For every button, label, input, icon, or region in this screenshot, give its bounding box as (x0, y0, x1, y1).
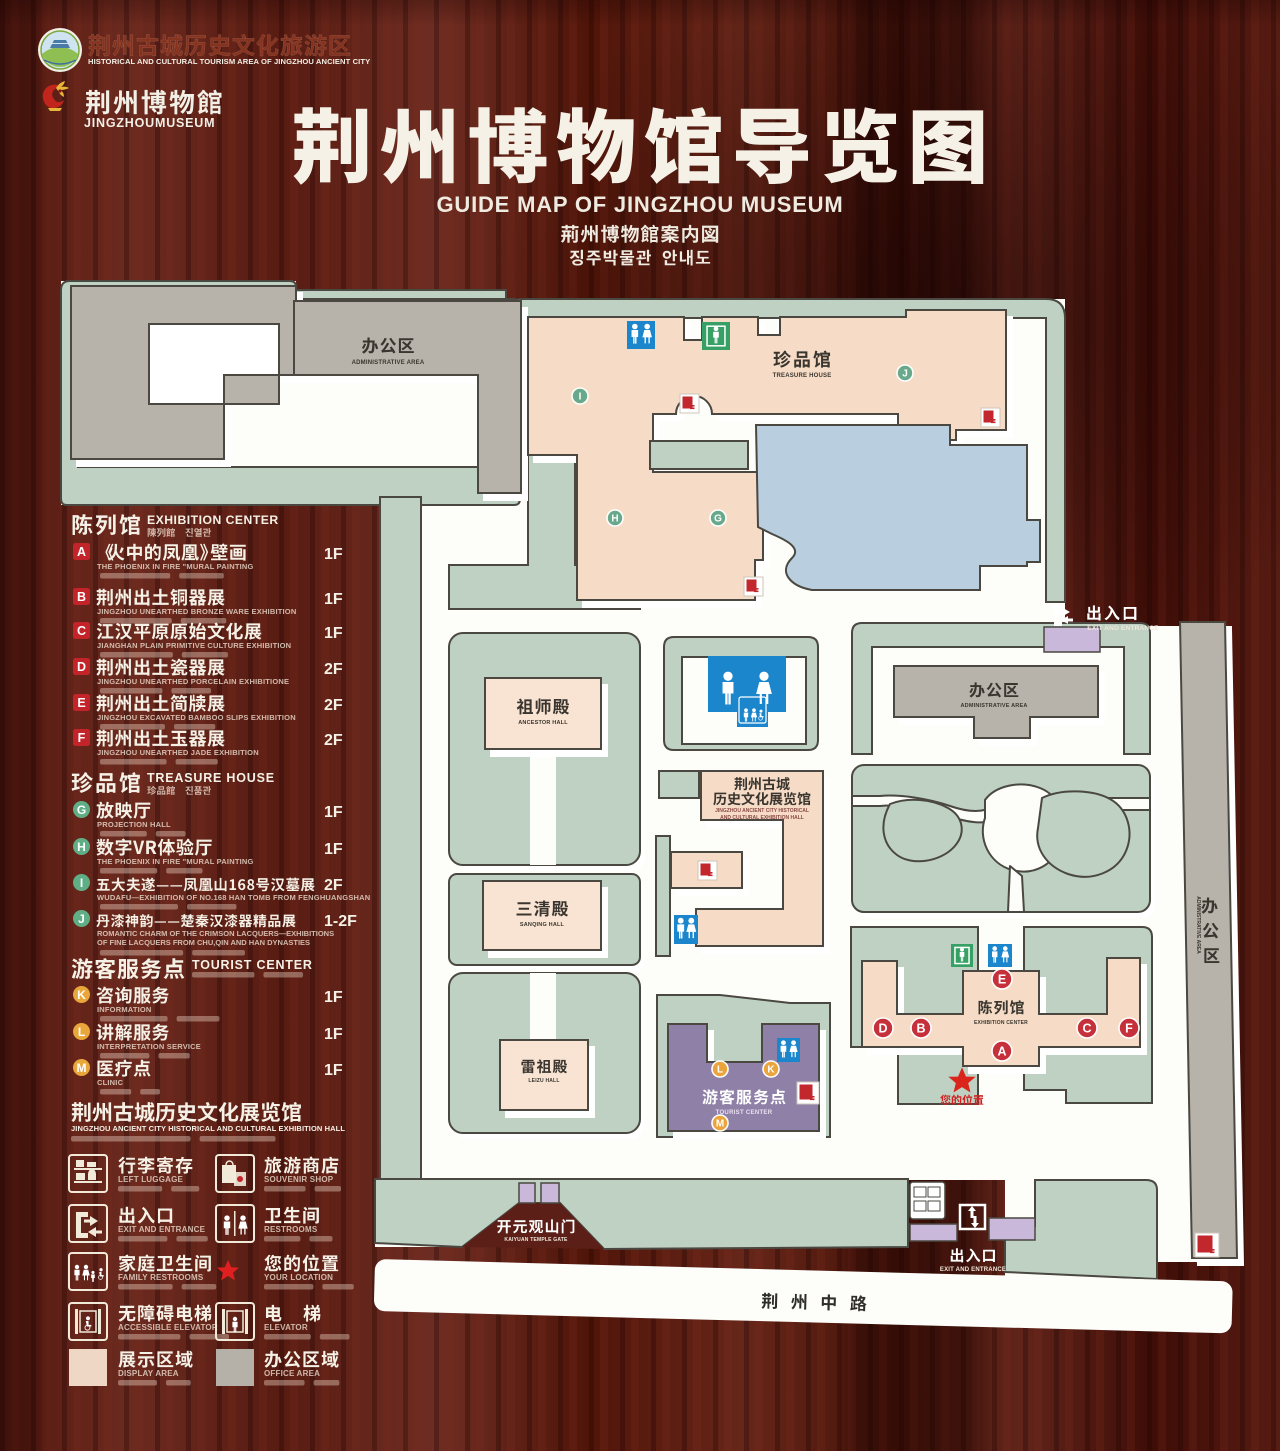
svg-text:INFORMATION: INFORMATION (97, 1005, 152, 1014)
svg-text:2F: 2F (324, 697, 343, 714)
svg-text:J: J (902, 369, 908, 380)
svg-text:JINGZHOU UNEARTHED BRONZE WARE: JINGZHOU UNEARTHED BRONZE WARE EXHIBITIO… (97, 607, 296, 616)
svg-text:K: K (77, 988, 86, 1002)
svg-text:EXHIBITION CENTER: EXHIBITION CENTER (147, 513, 279, 527)
svg-text:D: D (77, 660, 86, 674)
svg-text:1F: 1F (324, 1026, 343, 1043)
svg-text:OF FINE LACQUERS FROM CHU,QIN: OF FINE LACQUERS FROM CHU,QIN AND HAN DY… (97, 938, 310, 947)
svg-text:OFFICE AREA: OFFICE AREA (264, 1369, 320, 1378)
svg-text:HISTORICAL AND CULTURAL TOURIS: HISTORICAL AND CULTURAL TOURISM AREA OF … (88, 57, 370, 66)
svg-text:1F: 1F (324, 1062, 343, 1079)
svg-text:EXIT AND ENTRANCE: EXIT AND ENTRANCE (1087, 625, 1159, 632)
svg-text:M: M (77, 1061, 87, 1075)
svg-text:THE PHOENIX IN FIRE "MURAL PAI: THE PHOENIX IN FIRE "MURAL PAINTING (97, 562, 254, 571)
svg-text:C: C (1082, 1022, 1091, 1036)
svg-text:EXIT AND ENTRANCE: EXIT AND ENTRANCE (940, 1267, 1006, 1273)
svg-text:C: C (77, 624, 86, 638)
svg-text:LEIZU HALL: LEIZU HALL (528, 1078, 559, 1084)
svg-text:GUIDE MAP OF JINGZHOU MUSEUM: GUIDE MAP OF JINGZHOU MUSEUM (436, 192, 843, 217)
svg-text:J: J (78, 912, 85, 926)
svg-text:1F: 1F (324, 546, 343, 563)
svg-text:SOUVENIR SHOP: SOUVENIR SHOP (264, 1175, 334, 1184)
svg-text:E: E (77, 696, 85, 710)
svg-text:RESTROOMS: RESTROOMS (264, 1225, 318, 1234)
svg-text:LEFT LUGGAGE: LEFT LUGGAGE (118, 1175, 184, 1184)
svg-text:A: A (77, 545, 86, 559)
svg-text:I: I (80, 876, 83, 890)
svg-text:B: B (916, 1022, 925, 1036)
svg-text:THE PHOENIX IN FIRE "MURAL PAI: THE PHOENIX IN FIRE "MURAL PAINTING (97, 857, 254, 866)
svg-text:TREASURE HOUSE: TREASURE HOUSE (773, 373, 832, 379)
svg-text:JINGZHOUMUSEUM: JINGZHOUMUSEUM (84, 116, 215, 130)
svg-text:EXIT AND ENTRANCE: EXIT AND ENTRANCE (118, 1225, 206, 1234)
svg-text:L: L (717, 1065, 723, 1076)
svg-text:1F: 1F (324, 841, 343, 858)
svg-text:KAIYUAN TEMPLE GATE: KAIYUAN TEMPLE GATE (504, 1237, 568, 1243)
svg-text:L: L (78, 1025, 85, 1039)
svg-text:2F: 2F (324, 877, 343, 894)
svg-text:1F: 1F (324, 591, 343, 608)
svg-text:JINGZHOU ANCIENT CITY HISTORIC: JINGZHOU ANCIENT CITY HISTORICAL (715, 808, 809, 814)
svg-text:1F: 1F (324, 625, 343, 642)
svg-text:JINGZHOU UNEARTHED PORCELAIN E: JINGZHOU UNEARTHED PORCELAIN EXHIBITIONE (97, 677, 289, 686)
svg-text:A: A (997, 1045, 1006, 1059)
svg-text:I: I (579, 392, 582, 403)
svg-text:1-2F: 1-2F (324, 913, 357, 930)
svg-text:JINGZHOU ANCIENT CITY HISTORIC: JINGZHOU ANCIENT CITY HISTORICAL AND CUL… (71, 1124, 345, 1133)
svg-text:EXHIBITION CENTER: EXHIBITION CENTER (974, 1020, 1028, 1026)
svg-text:SANQING HALL: SANQING HALL (520, 922, 565, 928)
svg-text:INTERPRETATION SERVICE: INTERPRETATION SERVICE (97, 1042, 201, 1051)
svg-text:YOUR LOCATION: YOUR LOCATION (264, 1273, 333, 1282)
svg-text:ADMINISTRATIVE AREA: ADMINISTRATIVE AREA (352, 360, 425, 366)
svg-text:PROJECTION HALL: PROJECTION HALL (97, 820, 171, 829)
svg-text:ANCESTOR HALL: ANCESTOR HALL (518, 720, 568, 726)
svg-text:ROMANTIC CHARM OF THE CRIMSON: ROMANTIC CHARM OF THE CRIMSON LACQUERS—E… (97, 929, 334, 938)
svg-text:M: M (716, 1119, 724, 1130)
svg-text:TREASURE HOUSE: TREASURE HOUSE (147, 771, 275, 785)
svg-text:G: G (77, 803, 86, 817)
svg-text:JINGZHOU EXCAVATED BAMBOO SLIP: JINGZHOU EXCAVATED BAMBOO SLIPS EXHIBITI… (97, 713, 296, 722)
svg-text:ADMINISTRATIVE AREA: ADMINISTRATIVE AREA (960, 703, 1027, 709)
svg-text:WUDAFU—EXHIBITION OF NO.168 HA: WUDAFU—EXHIBITION OF NO.168 HAN TOMB FRO… (97, 893, 370, 902)
svg-text:TOURIST CENTER: TOURIST CENTER (716, 1110, 773, 1116)
svg-text:JIANGHAN PLAIN PRIMITIVE CULTU: JIANGHAN PLAIN PRIMITIVE CULTURE EXHIBIT… (97, 641, 291, 650)
svg-text:CLINIC: CLINIC (97, 1078, 124, 1087)
svg-text:2F: 2F (324, 661, 343, 678)
svg-text:1F: 1F (324, 804, 343, 821)
svg-text:B: B (77, 590, 86, 604)
svg-text:F: F (78, 731, 86, 745)
svg-text:H: H (611, 514, 618, 525)
svg-text:2F: 2F (324, 732, 343, 749)
svg-text:E: E (998, 973, 1006, 987)
svg-text:AND CULTURAL EXHIBITION HALL: AND CULTURAL EXHIBITION HALL (720, 815, 804, 821)
svg-text:DISPLAY AREA: DISPLAY AREA (118, 1369, 179, 1378)
svg-text:H: H (77, 840, 86, 854)
svg-text:D: D (878, 1022, 887, 1036)
svg-text:1F: 1F (324, 989, 343, 1006)
svg-text:TOURIST CENTER: TOURIST CENTER (192, 958, 313, 972)
svg-text:FAMILY RESTROOMS: FAMILY RESTROOMS (118, 1273, 204, 1282)
svg-text:ELEVATOR: ELEVATOR (264, 1323, 308, 1332)
svg-text:K: K (767, 1065, 775, 1076)
svg-text:F: F (1125, 1022, 1133, 1036)
svg-text:ACCESSIBLE ELEVATOR: ACCESSIBLE ELEVATOR (118, 1323, 218, 1332)
svg-text:JINGZHOU UNEARTHED JADE EXHIBI: JINGZHOU UNEARTHED JADE EXHIBITION (97, 748, 259, 757)
svg-text:G: G (714, 514, 722, 525)
svg-text:ADMINISTRATIVE AREA: ADMINISTRATIVE AREA (1195, 896, 1201, 954)
